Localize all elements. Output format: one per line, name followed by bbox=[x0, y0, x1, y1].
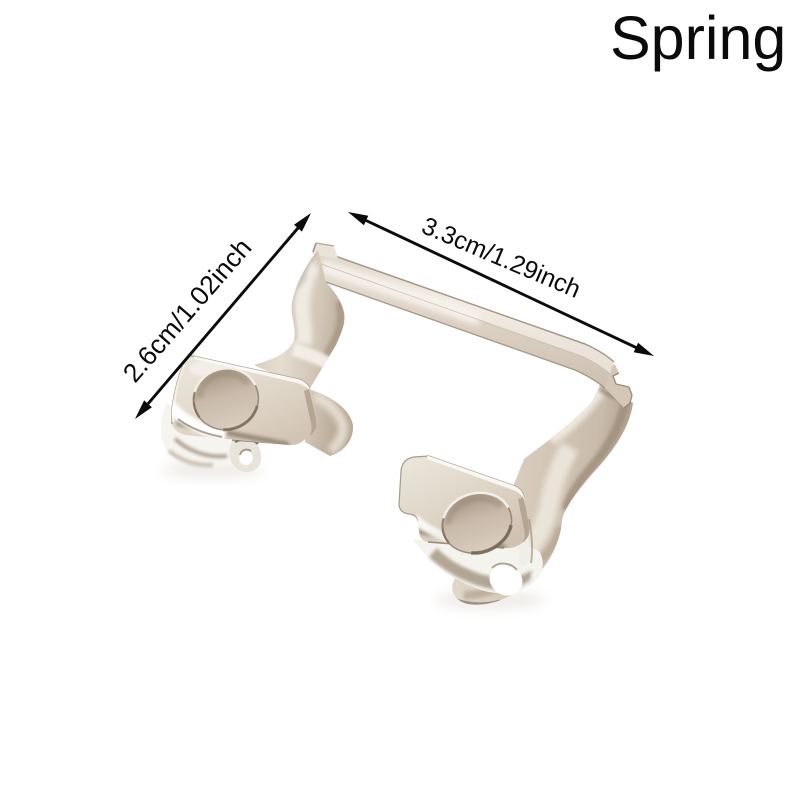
svg-text:Spring: Spring bbox=[610, 4, 786, 72]
